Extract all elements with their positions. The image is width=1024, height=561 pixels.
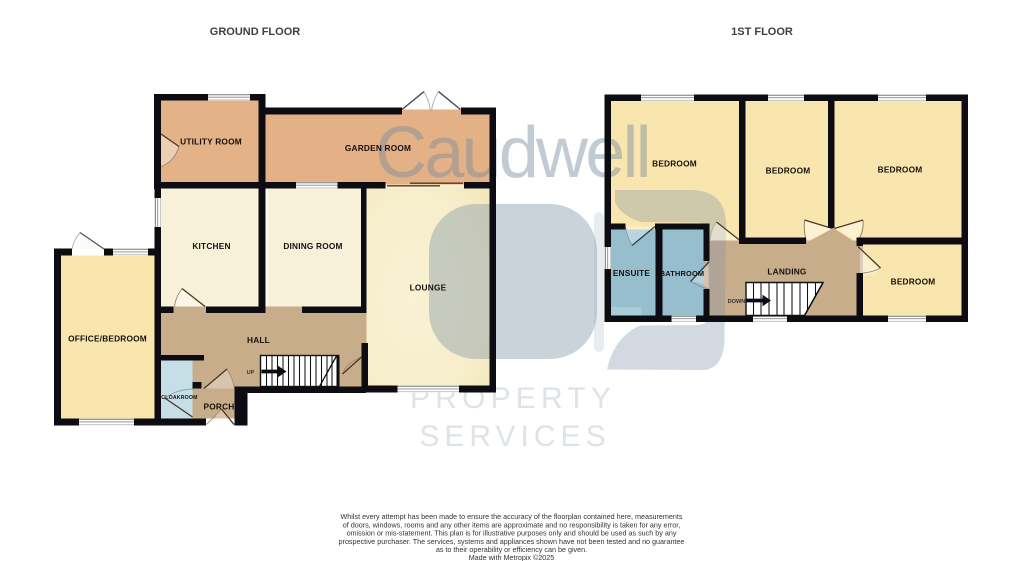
svg-text:Made with Metropix ©2025: Made with Metropix ©2025 [469,553,555,561]
svg-text:OFFICE/BEDROOM: OFFICE/BEDROOM [68,334,147,344]
svg-text:SERVICES: SERVICES [419,420,610,453]
svg-text:KITCHEN: KITCHEN [192,241,230,251]
svg-text:BEDROOM: BEDROOM [878,165,923,175]
svg-text:UTILITY ROOM: UTILITY ROOM [180,137,242,147]
svg-text:ENSUITE: ENSUITE [613,268,651,278]
svg-text:BEDROOM: BEDROOM [891,277,936,287]
svg-text:CLOAKROOM: CLOAKROOM [161,395,197,401]
svg-text:LOUNGE: LOUNGE [410,283,447,293]
svg-text:LANDING: LANDING [767,267,806,277]
svg-text:BATHROOM: BATHROOM [660,269,705,278]
svg-text:1ST FLOOR: 1ST FLOOR [731,26,793,38]
svg-text:GROUND FLOOR: GROUND FLOOR [210,26,300,38]
svg-text:DINING ROOM: DINING ROOM [283,241,342,251]
svg-text:PORCH: PORCH [204,402,235,412]
svg-text:GARDEN ROOM: GARDEN ROOM [345,143,411,153]
svg-text:BEDROOM: BEDROOM [766,166,811,176]
svg-text:UP: UP [247,370,255,376]
svg-text:HALL: HALL [247,335,270,345]
svg-text:BEDROOM: BEDROOM [652,159,697,169]
svg-text:DOWN: DOWN [728,299,746,305]
